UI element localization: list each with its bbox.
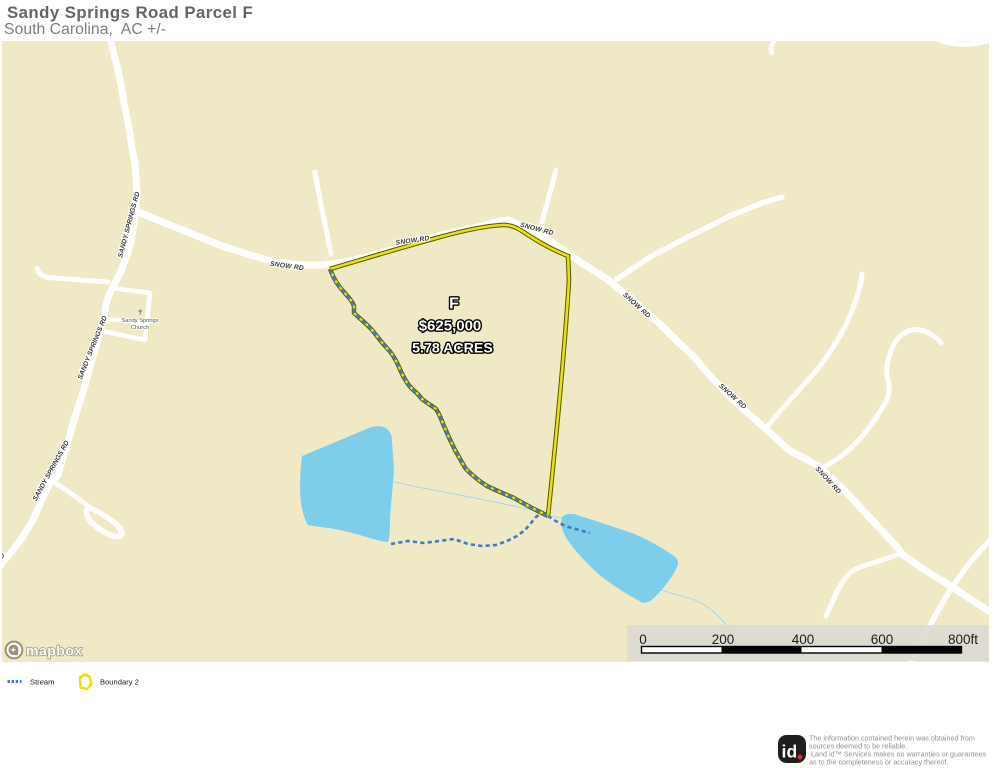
svg-text:600: 600 (871, 632, 894, 647)
svg-text:800ft: 800ft (948, 632, 978, 647)
svg-text:0: 0 (639, 632, 647, 647)
svg-text:F: F (449, 296, 459, 313)
svg-text:as to the completeness or accu: as to the completeness or accuracy there… (809, 758, 948, 767)
svg-text:Boundary 2: Boundary 2 (100, 677, 139, 686)
svg-text:mapbox: mapbox (26, 643, 83, 659)
svg-text:5.78 ACRES: 5.78 ACRES (412, 341, 493, 357)
svg-text:Stream: Stream (30, 677, 54, 686)
svg-text:id: id (782, 742, 798, 762)
svg-text:Sandy Springs: Sandy Springs (122, 318, 159, 324)
svg-text:200: 200 (712, 632, 735, 647)
svg-text:400: 400 (792, 632, 815, 647)
svg-text:Church: Church (131, 325, 149, 331)
svg-text:$625,000: $625,000 (419, 318, 482, 335)
